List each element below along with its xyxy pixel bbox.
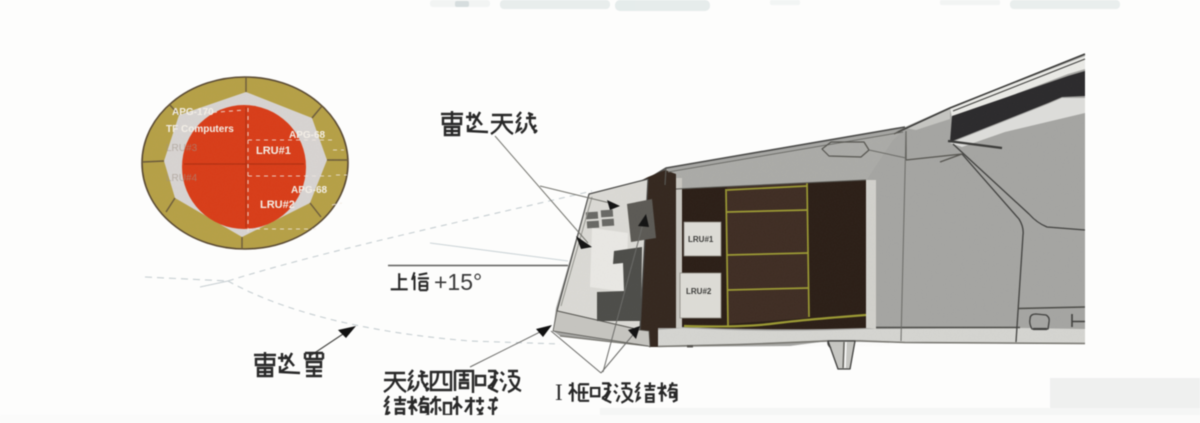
svg-text:I: I xyxy=(555,380,563,405)
svg-text:+15°: +15° xyxy=(434,269,482,295)
